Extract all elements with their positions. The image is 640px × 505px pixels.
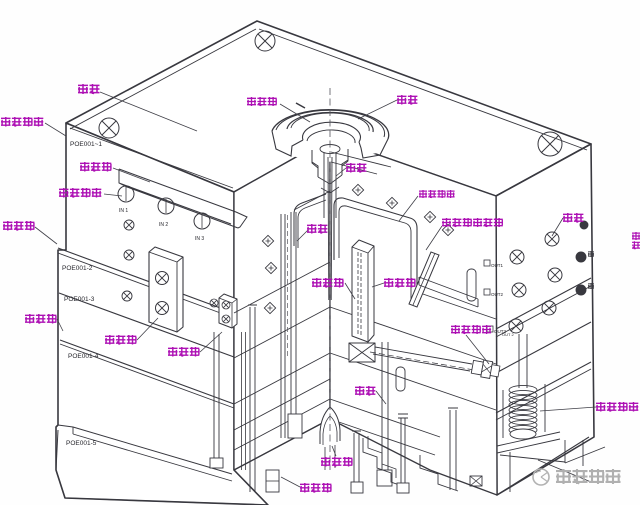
svg-text:OUT1: OUT1 [491,263,503,268]
svg-text:POE001-5: POE001-5 [66,440,97,447]
svg-text:IN 2: IN 2 [159,222,168,228]
svg-text:POE001-3: POE001-3 [64,296,95,303]
svg-text:POE001-4: POE001-4 [68,353,99,360]
svg-text:OUT2: OUT2 [491,292,503,297]
svg-text:IN 3: IN 3 [195,236,204,242]
svg-text:IN 1: IN 1 [119,208,128,214]
svg-text:OUT 2: OUT 2 [502,332,514,337]
svg-text:POE001~1: POE001~1 [70,141,102,148]
svg-text:POE001-2: POE001-2 [62,265,93,272]
